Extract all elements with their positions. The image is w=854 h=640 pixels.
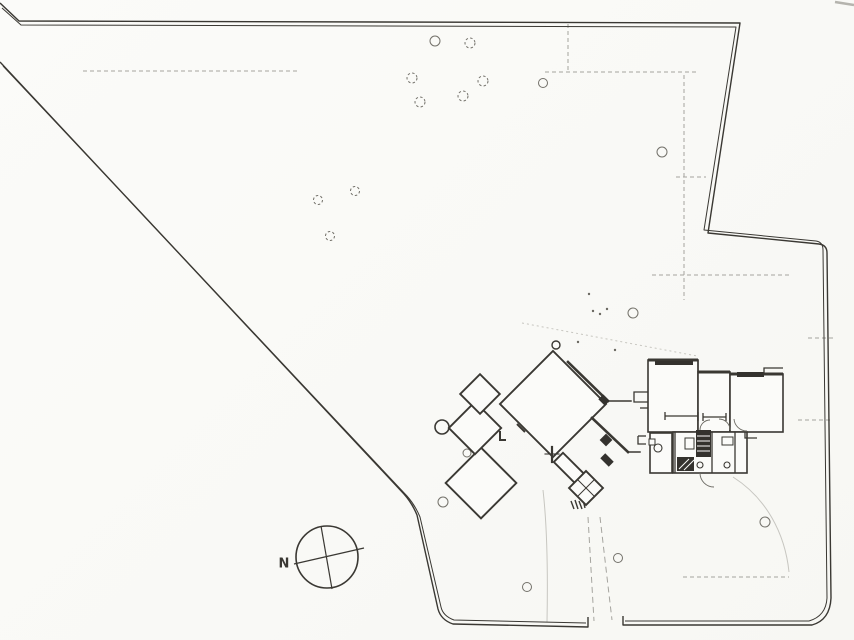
tree-circles bbox=[314, 36, 771, 592]
stair-block bbox=[696, 430, 711, 457]
scanned-site-plan-sheet: N bbox=[0, 0, 854, 640]
tree-circle bbox=[326, 232, 335, 241]
tree-circle bbox=[415, 97, 425, 107]
north-label: N bbox=[279, 557, 290, 572]
planting-dot bbox=[592, 310, 594, 312]
diagonal-wing-room bbox=[500, 351, 606, 457]
tree-circle bbox=[430, 36, 440, 46]
building-floor-plan bbox=[446, 341, 783, 518]
tree-circle bbox=[314, 196, 323, 205]
dashed-setback-line bbox=[522, 323, 697, 356]
tree-circle bbox=[657, 147, 667, 157]
tree-circle bbox=[458, 91, 468, 101]
boundary-outer-line bbox=[0, 62, 588, 627]
ortho-wing-room bbox=[648, 360, 698, 432]
tree-circle bbox=[760, 517, 770, 527]
planting-dot bbox=[577, 341, 579, 343]
boundary-outer-line bbox=[0, 3, 831, 625]
boundary-inner-line bbox=[3, 66, 586, 623]
freestanding-wall bbox=[592, 418, 628, 452]
diagonal-wing-room bbox=[446, 448, 517, 519]
diagonal-wing-room bbox=[460, 374, 500, 414]
tree-circle bbox=[438, 497, 448, 507]
planting-dot bbox=[606, 308, 608, 310]
solid-core-block bbox=[600, 453, 613, 466]
interior-partition-wall bbox=[638, 436, 646, 444]
faint-landscape-line bbox=[543, 490, 547, 622]
scan-smudge bbox=[835, 2, 854, 5]
planting-dot bbox=[599, 313, 601, 315]
driveway-edge-dashed bbox=[588, 517, 594, 621]
tree-circle bbox=[351, 187, 360, 196]
wall-detail-mark bbox=[500, 431, 506, 440]
plumbing-fixture-circle bbox=[724, 462, 730, 468]
property-boundary bbox=[0, 3, 831, 627]
plumbing-fixture-circle bbox=[697, 462, 703, 468]
landscape-faint-lines bbox=[543, 2, 854, 622]
door-swing-arc bbox=[700, 473, 714, 487]
column-flag-circle bbox=[552, 341, 560, 349]
ortho-wing-room bbox=[730, 374, 783, 432]
interior-partition-wall bbox=[634, 392, 648, 402]
tree-circle bbox=[539, 79, 548, 88]
tree-circle bbox=[478, 76, 488, 86]
tree-circle bbox=[523, 583, 532, 592]
plumbing-fixture-rect bbox=[685, 438, 694, 449]
plumbing-fixture-rect bbox=[722, 437, 733, 445]
dark-wall-band bbox=[655, 361, 693, 365]
dark-wall-band bbox=[737, 372, 764, 377]
tree-circle bbox=[628, 308, 638, 318]
tree-circle bbox=[465, 38, 475, 48]
planting-dot bbox=[614, 349, 616, 351]
driveway-edge-dashed bbox=[600, 517, 612, 620]
site-plan-drawing: N bbox=[0, 0, 854, 640]
planting-dot bbox=[588, 293, 590, 295]
boundary-inner-line bbox=[2, 8, 827, 621]
tree-circle bbox=[407, 73, 417, 83]
plumbing-fixture-rect bbox=[649, 439, 655, 445]
compass-needle-line bbox=[294, 548, 364, 564]
tree-circle bbox=[435, 420, 449, 434]
tree-circle bbox=[614, 554, 623, 563]
north-compass: N bbox=[279, 526, 364, 589]
